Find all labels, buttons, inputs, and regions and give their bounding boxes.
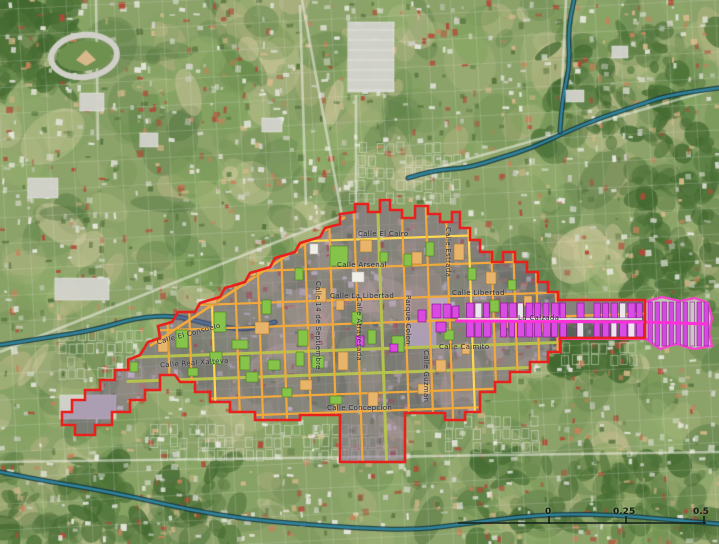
- scale-label-025: 0.25: [613, 507, 635, 517]
- street-label-libertad-east: Calle Libertad: [452, 289, 505, 297]
- street-label-el-cairo: Calle El Cairo: [358, 230, 409, 238]
- historic-center-overlay: [0, 0, 719, 544]
- scale-label-05: 0.5: [693, 507, 709, 517]
- scale-bar: 0 0.25 0.5: [450, 506, 712, 536]
- label-parque-colon: Parque Colon: [404, 295, 412, 345]
- scale-bar-line: [458, 522, 706, 524]
- street-label-14-septiembre: Calle 14 de Septiembre: [314, 281, 322, 370]
- street-label-atravesada: Calle Atravesada: [355, 297, 363, 361]
- scale-tick: [548, 516, 550, 524]
- map-viewport[interactable]: Calle El Cairo Calle Arsenal Calle La Li…: [0, 0, 719, 544]
- street-label-la-calzada: La Calzada: [518, 314, 559, 322]
- street-label-estrada: Calle Estrada: [444, 227, 452, 277]
- scale-tick: [625, 516, 627, 524]
- street-label-guzman: Calle Guzman: [422, 350, 430, 402]
- street-label-concepcion: Calle Concepcion: [327, 404, 392, 412]
- street-label-arsenal: Calle Arsenal: [337, 261, 387, 269]
- street-label-caimito: Calle Caimito: [439, 343, 489, 351]
- scale-tick: [703, 516, 705, 524]
- scale-label-0: 0: [545, 507, 551, 517]
